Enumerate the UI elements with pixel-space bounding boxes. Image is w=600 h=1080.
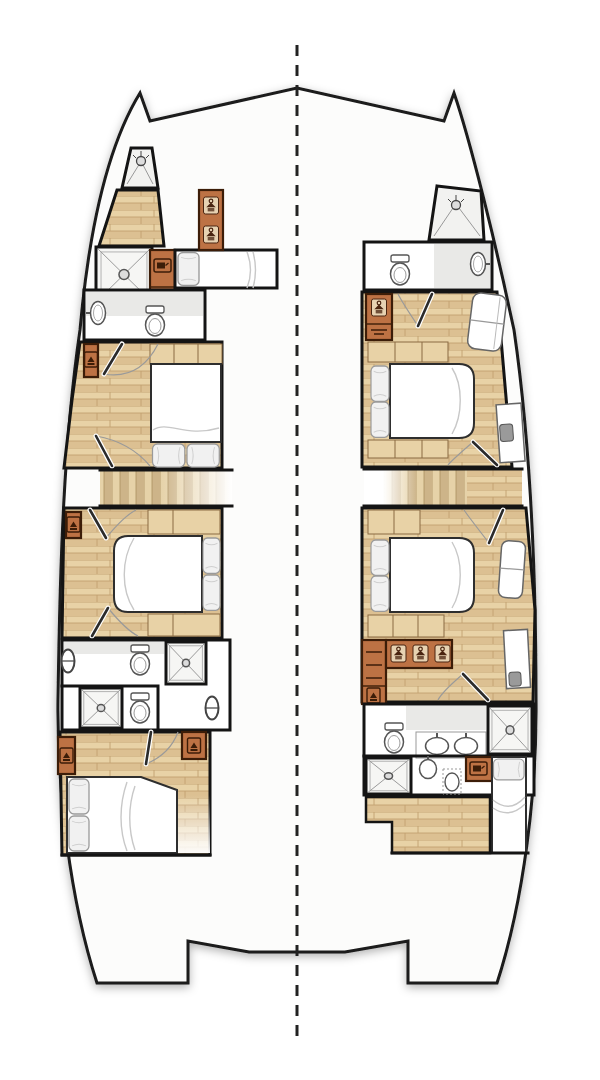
toilet	[131, 645, 150, 675]
deck-plan-svg	[0, 0, 600, 1080]
wardrobe	[199, 190, 223, 250]
wardrobe	[366, 294, 392, 340]
port-forward-head	[84, 290, 205, 340]
pillow	[153, 444, 185, 467]
sink	[455, 738, 478, 755]
footboard-lockers	[148, 614, 220, 636]
toilet	[131, 693, 150, 723]
stbd-forward-head	[364, 242, 492, 290]
pillow	[371, 402, 389, 437]
double-bed	[371, 538, 474, 612]
hanger-icon	[413, 645, 428, 662]
footboard-lockers	[368, 440, 448, 458]
port-aft-cabin	[58, 732, 210, 855]
stbd-aft-berth	[492, 757, 526, 853]
pillow	[371, 576, 389, 611]
double-bed	[371, 364, 474, 438]
pillow	[203, 538, 220, 573]
toilet	[146, 306, 165, 336]
seat	[498, 540, 526, 599]
wardrobe	[66, 512, 81, 538]
port-aft-head	[62, 640, 231, 730]
wardrobe	[182, 732, 206, 759]
pillow	[178, 253, 199, 286]
shower-pan	[80, 688, 122, 728]
shower-pan	[366, 758, 411, 794]
hanger-icon	[204, 197, 219, 214]
port-mid-cabin	[62, 508, 222, 638]
hanger-icon	[391, 645, 406, 662]
drawer-unit	[362, 640, 386, 704]
pillow	[203, 575, 220, 610]
porthole	[206, 697, 219, 720]
pillow	[187, 444, 219, 467]
shower-pan	[488, 706, 532, 754]
single-berth	[175, 250, 277, 288]
wardrobe	[58, 737, 75, 774]
toilet	[391, 255, 410, 285]
double-vanity	[416, 732, 486, 758]
headboard-lockers	[150, 344, 222, 364]
shower-pan	[166, 642, 206, 684]
pillow	[494, 759, 525, 780]
stbd-bow-shower	[429, 186, 484, 240]
port-forward-cabin	[64, 342, 222, 468]
stbd-mid-cabin	[362, 508, 535, 704]
catamaran-deck-plan	[0, 0, 600, 1080]
chair	[499, 424, 513, 442]
hanger-icon	[372, 299, 387, 316]
pillow	[69, 779, 89, 814]
shower-head-icon	[137, 157, 146, 166]
headboard-lockers	[368, 342, 448, 362]
porthole	[62, 650, 75, 673]
hanger-icon	[204, 226, 219, 243]
double-bed	[67, 777, 177, 853]
headboard-lockers	[368, 510, 420, 534]
stbd-forward-cabin	[362, 292, 525, 467]
wardrobe	[84, 344, 98, 377]
desk	[503, 629, 530, 688]
sofa	[467, 292, 508, 352]
shower-head-icon	[452, 201, 461, 210]
desk	[496, 403, 525, 463]
wardrobe-3-hangers	[386, 640, 452, 668]
pillow	[69, 816, 89, 851]
starboard-hull	[362, 186, 535, 853]
footboard-lockers	[368, 615, 444, 637]
tv-cabinet	[466, 757, 492, 781]
headboard-lockers	[148, 510, 220, 534]
hanger-icon	[435, 645, 450, 662]
pillow	[371, 366, 389, 401]
stbd-stairs	[364, 469, 522, 506]
port-stairs	[100, 470, 232, 506]
toilet	[385, 723, 404, 753]
pillow	[371, 540, 389, 575]
sink	[426, 738, 449, 755]
chair	[509, 672, 522, 687]
